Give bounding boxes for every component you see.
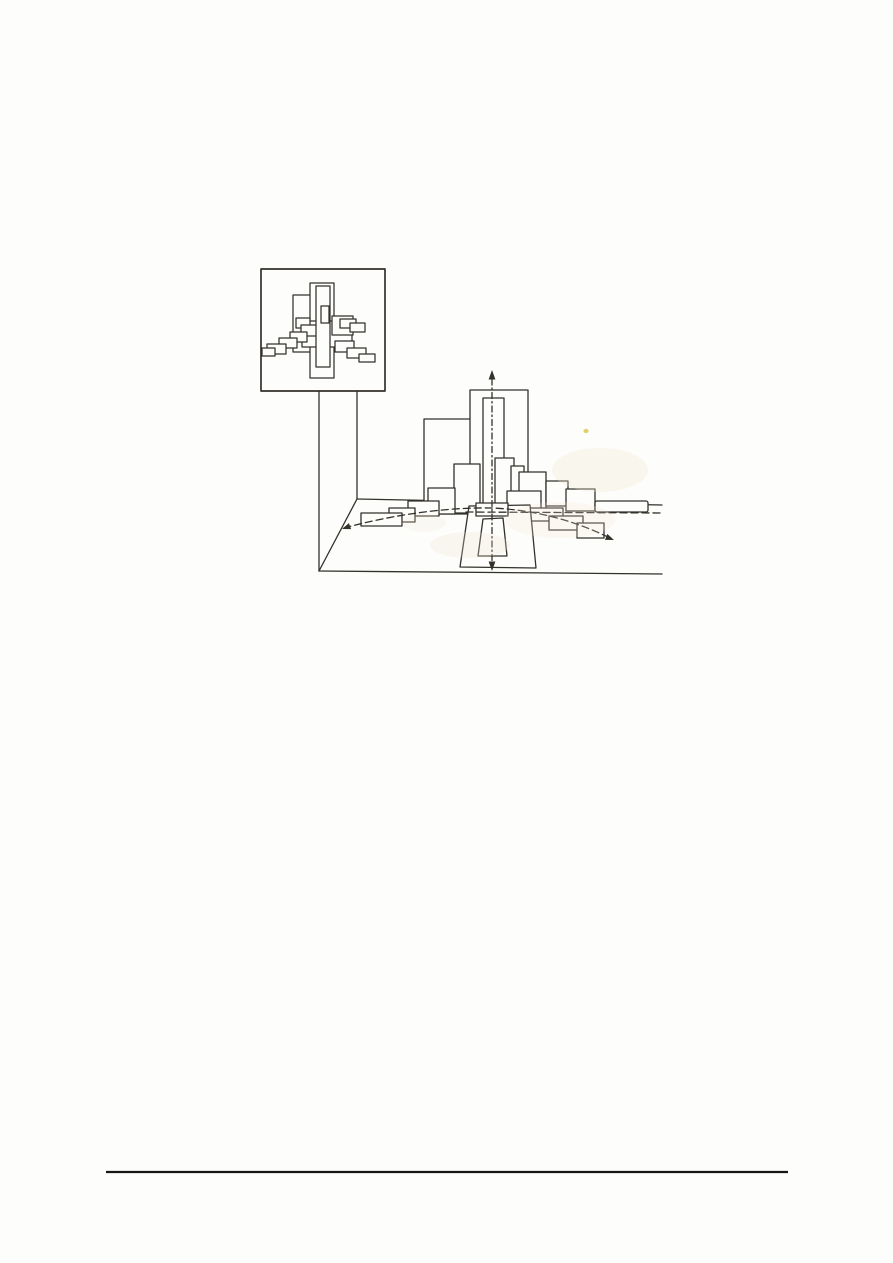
scan-stain [402, 514, 446, 532]
scan-stain [552, 448, 648, 492]
path-arrow-right [605, 534, 614, 540]
inset-picture [261, 269, 385, 391]
axis-arrow-up [489, 370, 496, 380]
scan-stain [430, 532, 510, 558]
inset-step-left [262, 348, 275, 356]
inset-step-right-lower [359, 354, 375, 362]
scan-stain [505, 502, 615, 538]
inset-central-inner-bar [321, 306, 329, 323]
floor-left-edge [319, 499, 357, 571]
floor-front-edge [319, 571, 662, 574]
scan-speck [583, 429, 588, 433]
inset-central-bar [316, 286, 330, 367]
figure-canvas [0, 0, 893, 1263]
inset-step-right-upper [350, 323, 365, 332]
document-page [0, 0, 893, 1263]
